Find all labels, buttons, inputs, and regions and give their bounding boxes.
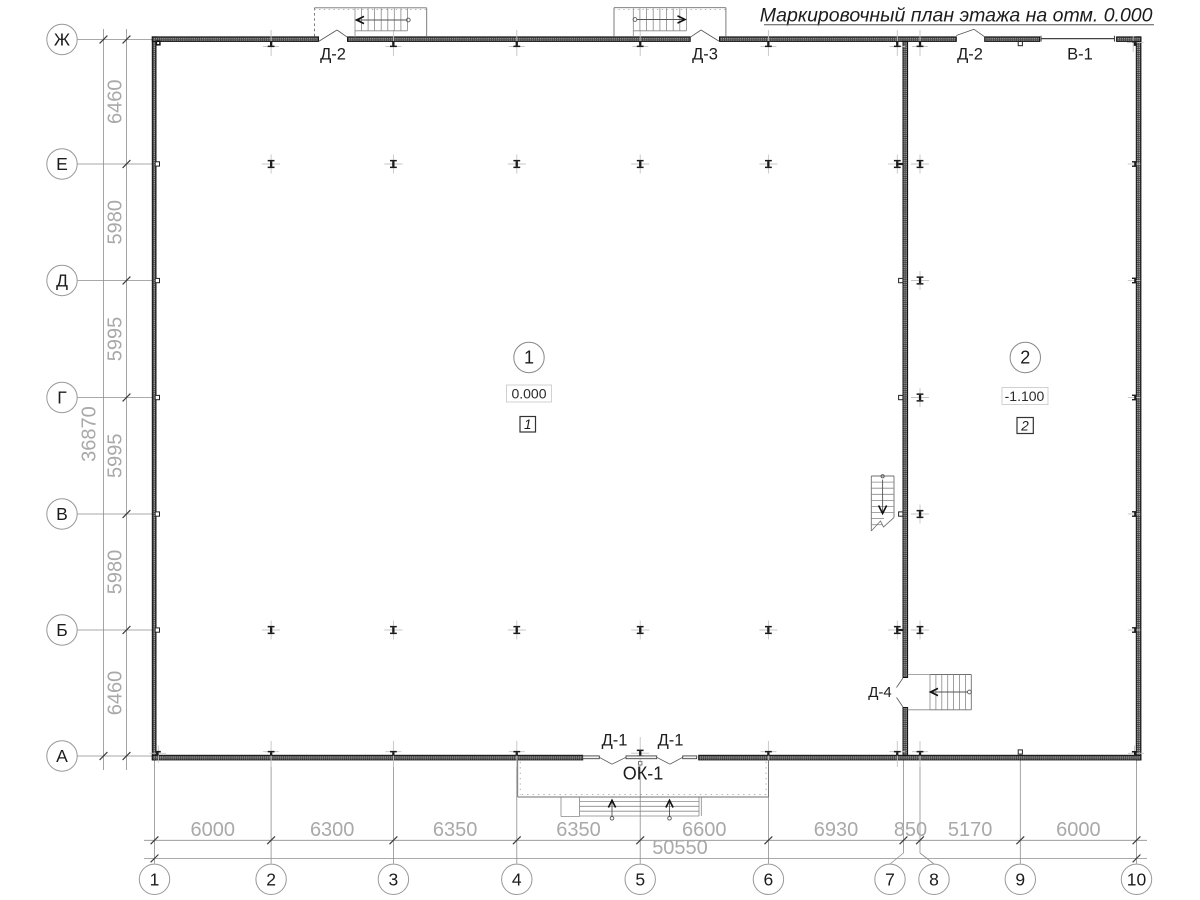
svg-text:2: 2 — [1020, 419, 1029, 434]
svg-text:Д-2: Д-2 — [957, 46, 983, 64]
svg-text:Д-1: Д-1 — [658, 732, 684, 750]
svg-text:0.000: 0.000 — [511, 386, 546, 402]
svg-text:6460: 6460 — [105, 671, 127, 716]
svg-text:6930: 6930 — [814, 819, 859, 841]
svg-text:850: 850 — [894, 819, 927, 841]
svg-text:50550: 50550 — [652, 837, 708, 859]
svg-text:7: 7 — [885, 870, 895, 890]
svg-text:6460: 6460 — [105, 80, 127, 125]
svg-text:Д: Д — [56, 271, 68, 291]
svg-text:А: А — [56, 746, 68, 766]
svg-text:5980: 5980 — [105, 550, 127, 595]
svg-text:Д-4: Д-4 — [868, 684, 892, 701]
svg-text:Д-3: Д-3 — [692, 46, 718, 64]
svg-text:Е: Е — [56, 154, 68, 174]
svg-text:Б: Б — [56, 620, 67, 640]
svg-text:Д-2: Д-2 — [320, 46, 346, 64]
svg-text:2: 2 — [1020, 348, 1030, 368]
svg-text:4: 4 — [512, 870, 522, 890]
svg-text:5: 5 — [635, 870, 645, 890]
svg-text:В: В — [56, 504, 68, 524]
svg-text:10: 10 — [1127, 870, 1147, 890]
svg-text:Ж: Ж — [54, 30, 70, 50]
svg-text:5995: 5995 — [105, 434, 127, 479]
svg-text:ОК-1: ОК-1 — [623, 764, 664, 784]
svg-text:5995: 5995 — [105, 317, 127, 362]
svg-text:Д-1: Д-1 — [602, 732, 628, 750]
svg-text:6350: 6350 — [556, 819, 601, 841]
svg-text:6: 6 — [764, 870, 774, 890]
svg-text:6000: 6000 — [191, 819, 236, 841]
svg-text:6350: 6350 — [433, 819, 478, 841]
svg-text:6300: 6300 — [310, 819, 355, 841]
svg-text:В-1: В-1 — [1067, 46, 1093, 64]
svg-text:5980: 5980 — [105, 200, 127, 245]
svg-text:5170: 5170 — [948, 819, 993, 841]
svg-text:6000: 6000 — [1056, 819, 1101, 841]
svg-text:-1.100: -1.100 — [1005, 388, 1045, 404]
svg-text:36870: 36870 — [78, 406, 100, 462]
svg-text:3: 3 — [389, 870, 399, 890]
svg-text:2: 2 — [266, 870, 276, 890]
svg-text:1: 1 — [150, 870, 160, 890]
svg-text:Г: Г — [57, 388, 67, 408]
svg-text:9: 9 — [1015, 870, 1025, 890]
svg-text:Маркировочный план этажа на от: Маркировочный план этажа на отм. 0.000 — [760, 5, 1153, 27]
svg-text:1: 1 — [524, 417, 532, 432]
svg-text:1: 1 — [524, 348, 534, 368]
svg-text:8: 8 — [929, 870, 939, 890]
